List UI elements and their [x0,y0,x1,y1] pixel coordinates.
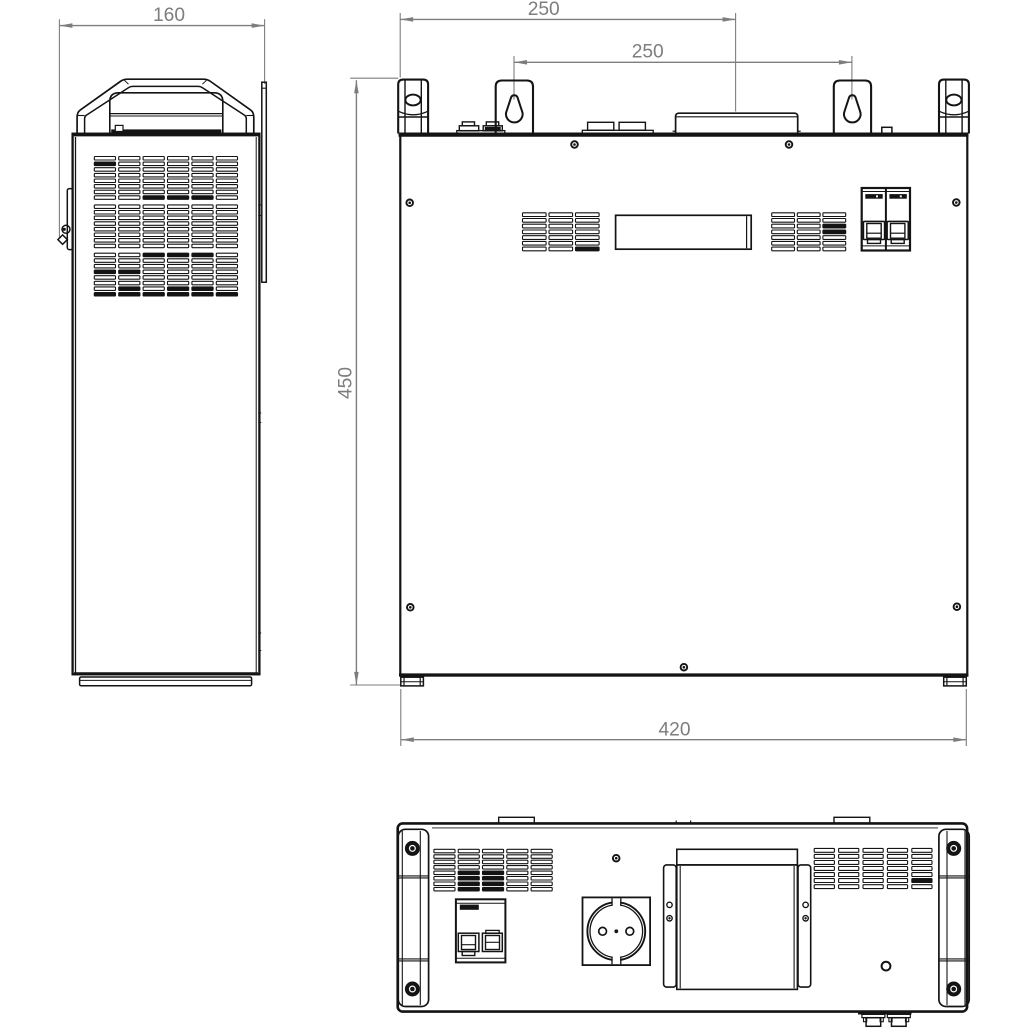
svg-text:420: 420 [658,720,690,741]
svg-text:250: 250 [528,0,560,20]
svg-text:450: 450 [336,367,357,399]
svg-text:250: 250 [632,42,664,63]
svg-text:160: 160 [153,5,185,26]
